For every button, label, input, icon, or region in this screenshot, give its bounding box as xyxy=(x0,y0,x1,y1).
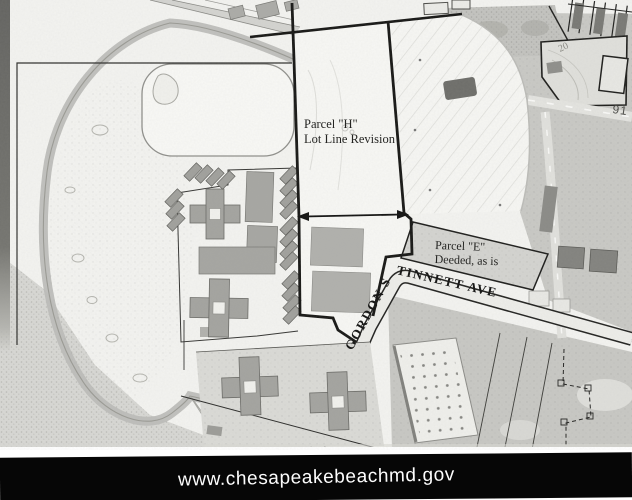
lot-line-revision-label: Lot Line Revision xyxy=(304,132,396,146)
aerial-parcel-map-image: 20 91 xyxy=(0,0,632,450)
parcel-h-label: Parcel "H" xyxy=(304,117,358,131)
website-url: www.chesapeakebeachmd.gov xyxy=(177,464,454,491)
photo-bottom-edge xyxy=(0,444,632,447)
deeded-as-is-label: Deeded, as is xyxy=(434,252,498,268)
photo-bottom-margin xyxy=(0,447,632,450)
scanned-map-page: 20 91 xyxy=(0,0,632,500)
footer-bar: www.chesapeakebeachmd.gov xyxy=(0,452,632,500)
route-91-label: 91 xyxy=(612,102,629,118)
scan-edge-strip xyxy=(0,0,10,352)
ballfield-outline xyxy=(142,64,294,156)
